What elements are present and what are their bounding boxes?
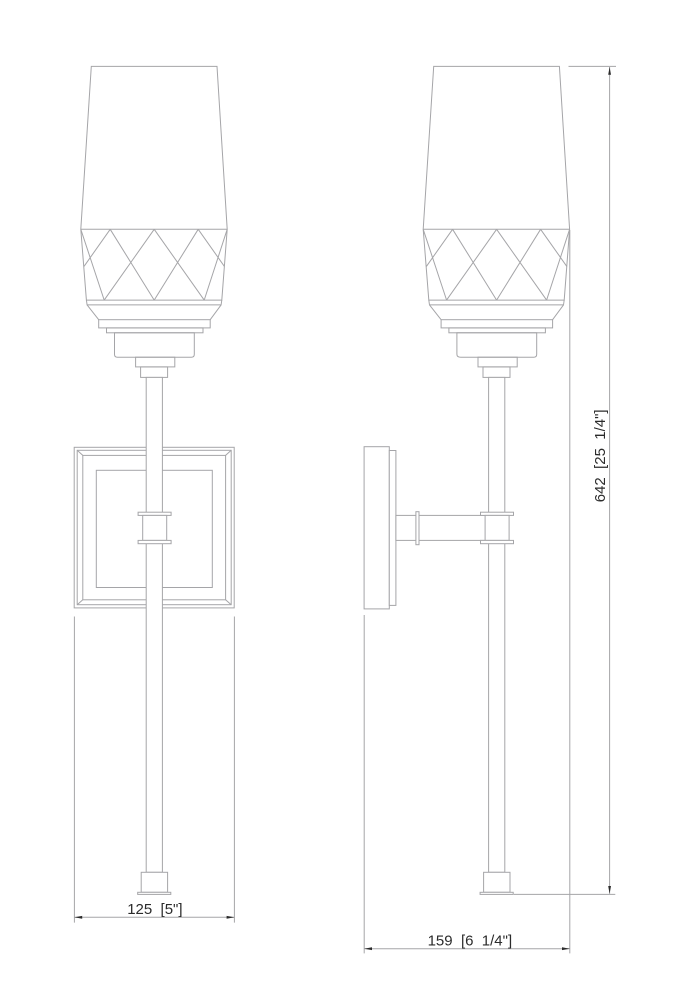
svg-text:159 [6 1/4"]: 159 [6 1/4"]: [428, 933, 513, 950]
svg-text:125 [5"]: 125 [5"]: [127, 901, 182, 918]
svg-text:642 [25 1/4"]: 642 [25 1/4"]: [592, 409, 609, 502]
